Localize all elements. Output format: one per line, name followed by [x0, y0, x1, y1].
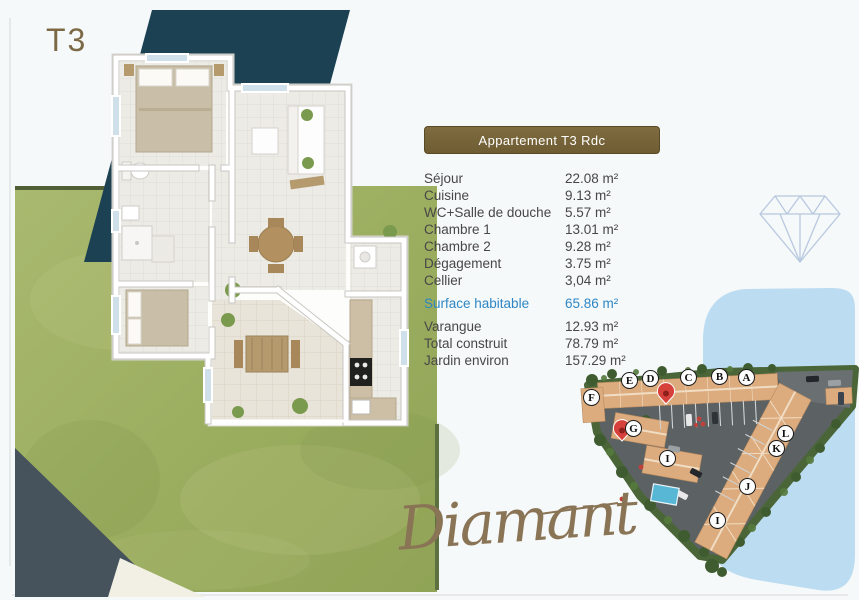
info-panel: Appartement T3 Rdc Séjour 22.08 m² Cuisi…: [424, 126, 660, 369]
room-value: 3.75 m²: [565, 255, 660, 272]
room-value: 65.86 m²: [565, 295, 660, 312]
table-row: Séjour 22.08 m²: [424, 170, 660, 187]
table-row: Cellier 3,04 m²: [424, 272, 660, 289]
table-row: Varangue 12.93 m²: [424, 318, 660, 335]
room-label: Chambre 2: [424, 238, 565, 255]
unit-badge-i1: I: [659, 450, 676, 467]
brand-script: Diamant: [396, 484, 620, 559]
table-row: Total construit 78.79 m²: [424, 335, 660, 352]
apartment-header: Appartement T3 Rdc: [424, 126, 660, 154]
table-row: WC+Salle de douche 5.57 m²: [424, 204, 660, 221]
room-value: 9.13 m²: [565, 187, 660, 204]
unit-badge-f: F: [583, 389, 600, 406]
brochure-page: T3 Appartement T3 Rdc Séjour 22.08 m² Cu…: [0, 0, 859, 600]
table-row: Dégagement 3.75 m²: [424, 255, 660, 272]
unit-badge-d: D: [642, 370, 659, 387]
room-label: Jardin environ: [424, 352, 565, 369]
room-value: 22.08 m²: [565, 170, 660, 187]
unit-badge-b: B: [711, 368, 728, 385]
unit-badge-a: A: [738, 369, 755, 386]
room-label: WC+Salle de douche: [424, 204, 565, 221]
table-row: Cuisine 9.13 m²: [424, 187, 660, 204]
unit-badge-l: L: [777, 425, 794, 442]
room-value: 78.79 m²: [565, 335, 660, 352]
unit-badge-i2: I: [709, 512, 726, 529]
room-label: Cellier: [424, 272, 565, 289]
unit-badge-c: C: [680, 369, 697, 386]
room-value: 157.29 m²: [565, 352, 660, 369]
table-row: Chambre 1 13.01 m²: [424, 221, 660, 238]
plan-type-label: T3: [46, 22, 87, 59]
unit-badge-e: E: [621, 372, 638, 389]
unit-badge-g: G: [625, 420, 642, 437]
diamond-outline-icon: [760, 196, 840, 262]
room-value: 12.93 m²: [565, 318, 660, 335]
unit-badge-j: J: [739, 478, 756, 495]
table-row: Jardin environ 157.29 m²: [424, 352, 660, 369]
room-label: Varangue: [424, 318, 565, 335]
room-label: Total construit: [424, 335, 565, 352]
surface-habitable-row: Surface habitable 65.86 m²: [424, 295, 660, 312]
room-label: Surface habitable: [424, 295, 565, 312]
room-value: 9.28 m²: [565, 238, 660, 255]
room-value: 13.01 m²: [565, 221, 660, 238]
room-label: Séjour: [424, 170, 565, 187]
room-table: Séjour 22.08 m² Cuisine 9.13 m² WC+Salle…: [424, 170, 660, 369]
room-label: Cuisine: [424, 187, 565, 204]
table-row: Chambre 2 9.28 m²: [424, 238, 660, 255]
room-value: 3,04 m²: [565, 272, 660, 289]
room-value: 5.57 m²: [565, 204, 660, 221]
room-label: Dégagement: [424, 255, 565, 272]
pool: [651, 484, 680, 505]
unit-badge-k: K: [768, 440, 785, 457]
room-label: Chambre 1: [424, 221, 565, 238]
